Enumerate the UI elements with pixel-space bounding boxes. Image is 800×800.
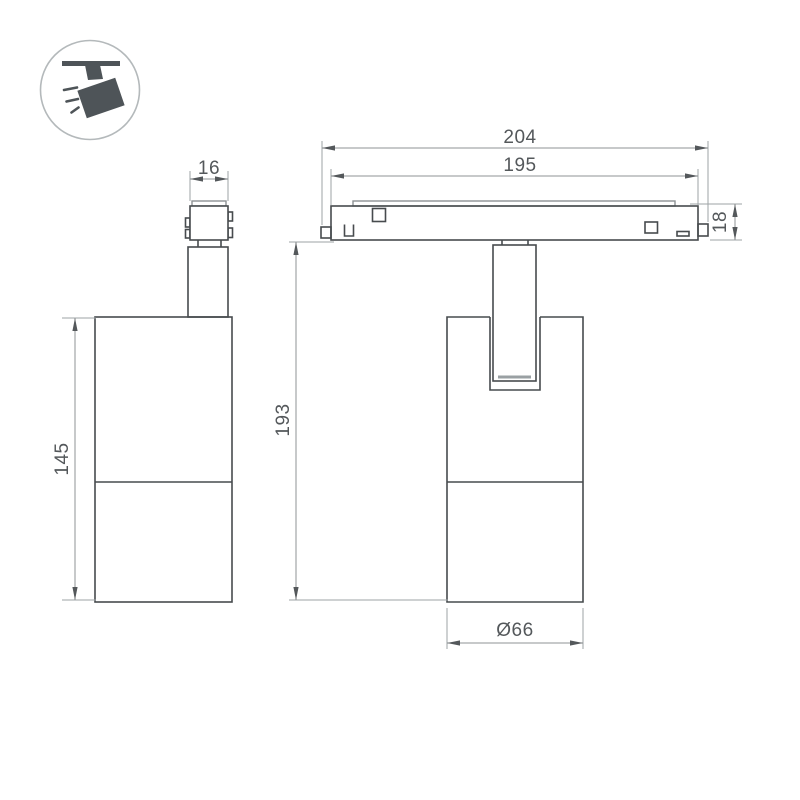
dim-label-204: 204 — [503, 127, 536, 148]
arrow-right-icon — [570, 640, 583, 645]
lamp-body-side — [95, 317, 232, 602]
arrow-left-icon — [447, 640, 460, 645]
arrow-up-icon — [732, 204, 737, 217]
dim-label-145: 145 — [52, 442, 73, 475]
arrow-down-icon — [72, 587, 77, 600]
yoke-arm-front — [493, 245, 536, 381]
track-slot — [677, 232, 689, 237]
body-slot — [490, 317, 540, 390]
adapter-box — [190, 206, 228, 240]
drawing-canvas: 16 145 2 — [0, 0, 800, 800]
dim-body-height: 145 — [52, 318, 96, 600]
dim-adapter-width: 16 — [190, 158, 228, 201]
front-view: 204 195 18 — [273, 127, 742, 649]
arrow-up-icon — [293, 242, 298, 255]
dimension-drawing-svg: 16 145 2 — [0, 0, 800, 800]
arrow-right-icon — [685, 173, 698, 178]
track-contact-clip — [345, 225, 354, 237]
dim-overall-height: 193 — [273, 242, 448, 600]
arrow-left-icon — [322, 145, 335, 150]
dim-label-18: 18 — [710, 211, 731, 233]
dim-label-diameter: Ø66 — [496, 620, 533, 641]
dim-body-diameter: Ø66 — [447, 608, 583, 649]
arrow-up-icon — [72, 318, 77, 331]
arrow-left-icon — [331, 173, 344, 178]
arrow-down-icon — [732, 227, 737, 240]
arrow-down-icon — [293, 587, 298, 600]
track-end-tab — [698, 224, 708, 236]
lamp-body-front — [447, 317, 583, 602]
track-cutout — [373, 209, 386, 222]
dim-label-195: 195 — [503, 155, 536, 176]
track-cutout — [645, 222, 658, 233]
arrow-right-icon — [695, 145, 708, 150]
dim-label-16: 16 — [198, 158, 220, 179]
side-view: 16 145 — [52, 158, 233, 602]
track-end-tab — [321, 227, 331, 238]
stem-glyph — [85, 65, 103, 80]
track-light-legend — [41, 41, 140, 140]
yoke-arm-side — [188, 247, 228, 317]
dim-label-193: 193 — [273, 403, 294, 436]
dim-track-body: 195 — [331, 155, 698, 205]
